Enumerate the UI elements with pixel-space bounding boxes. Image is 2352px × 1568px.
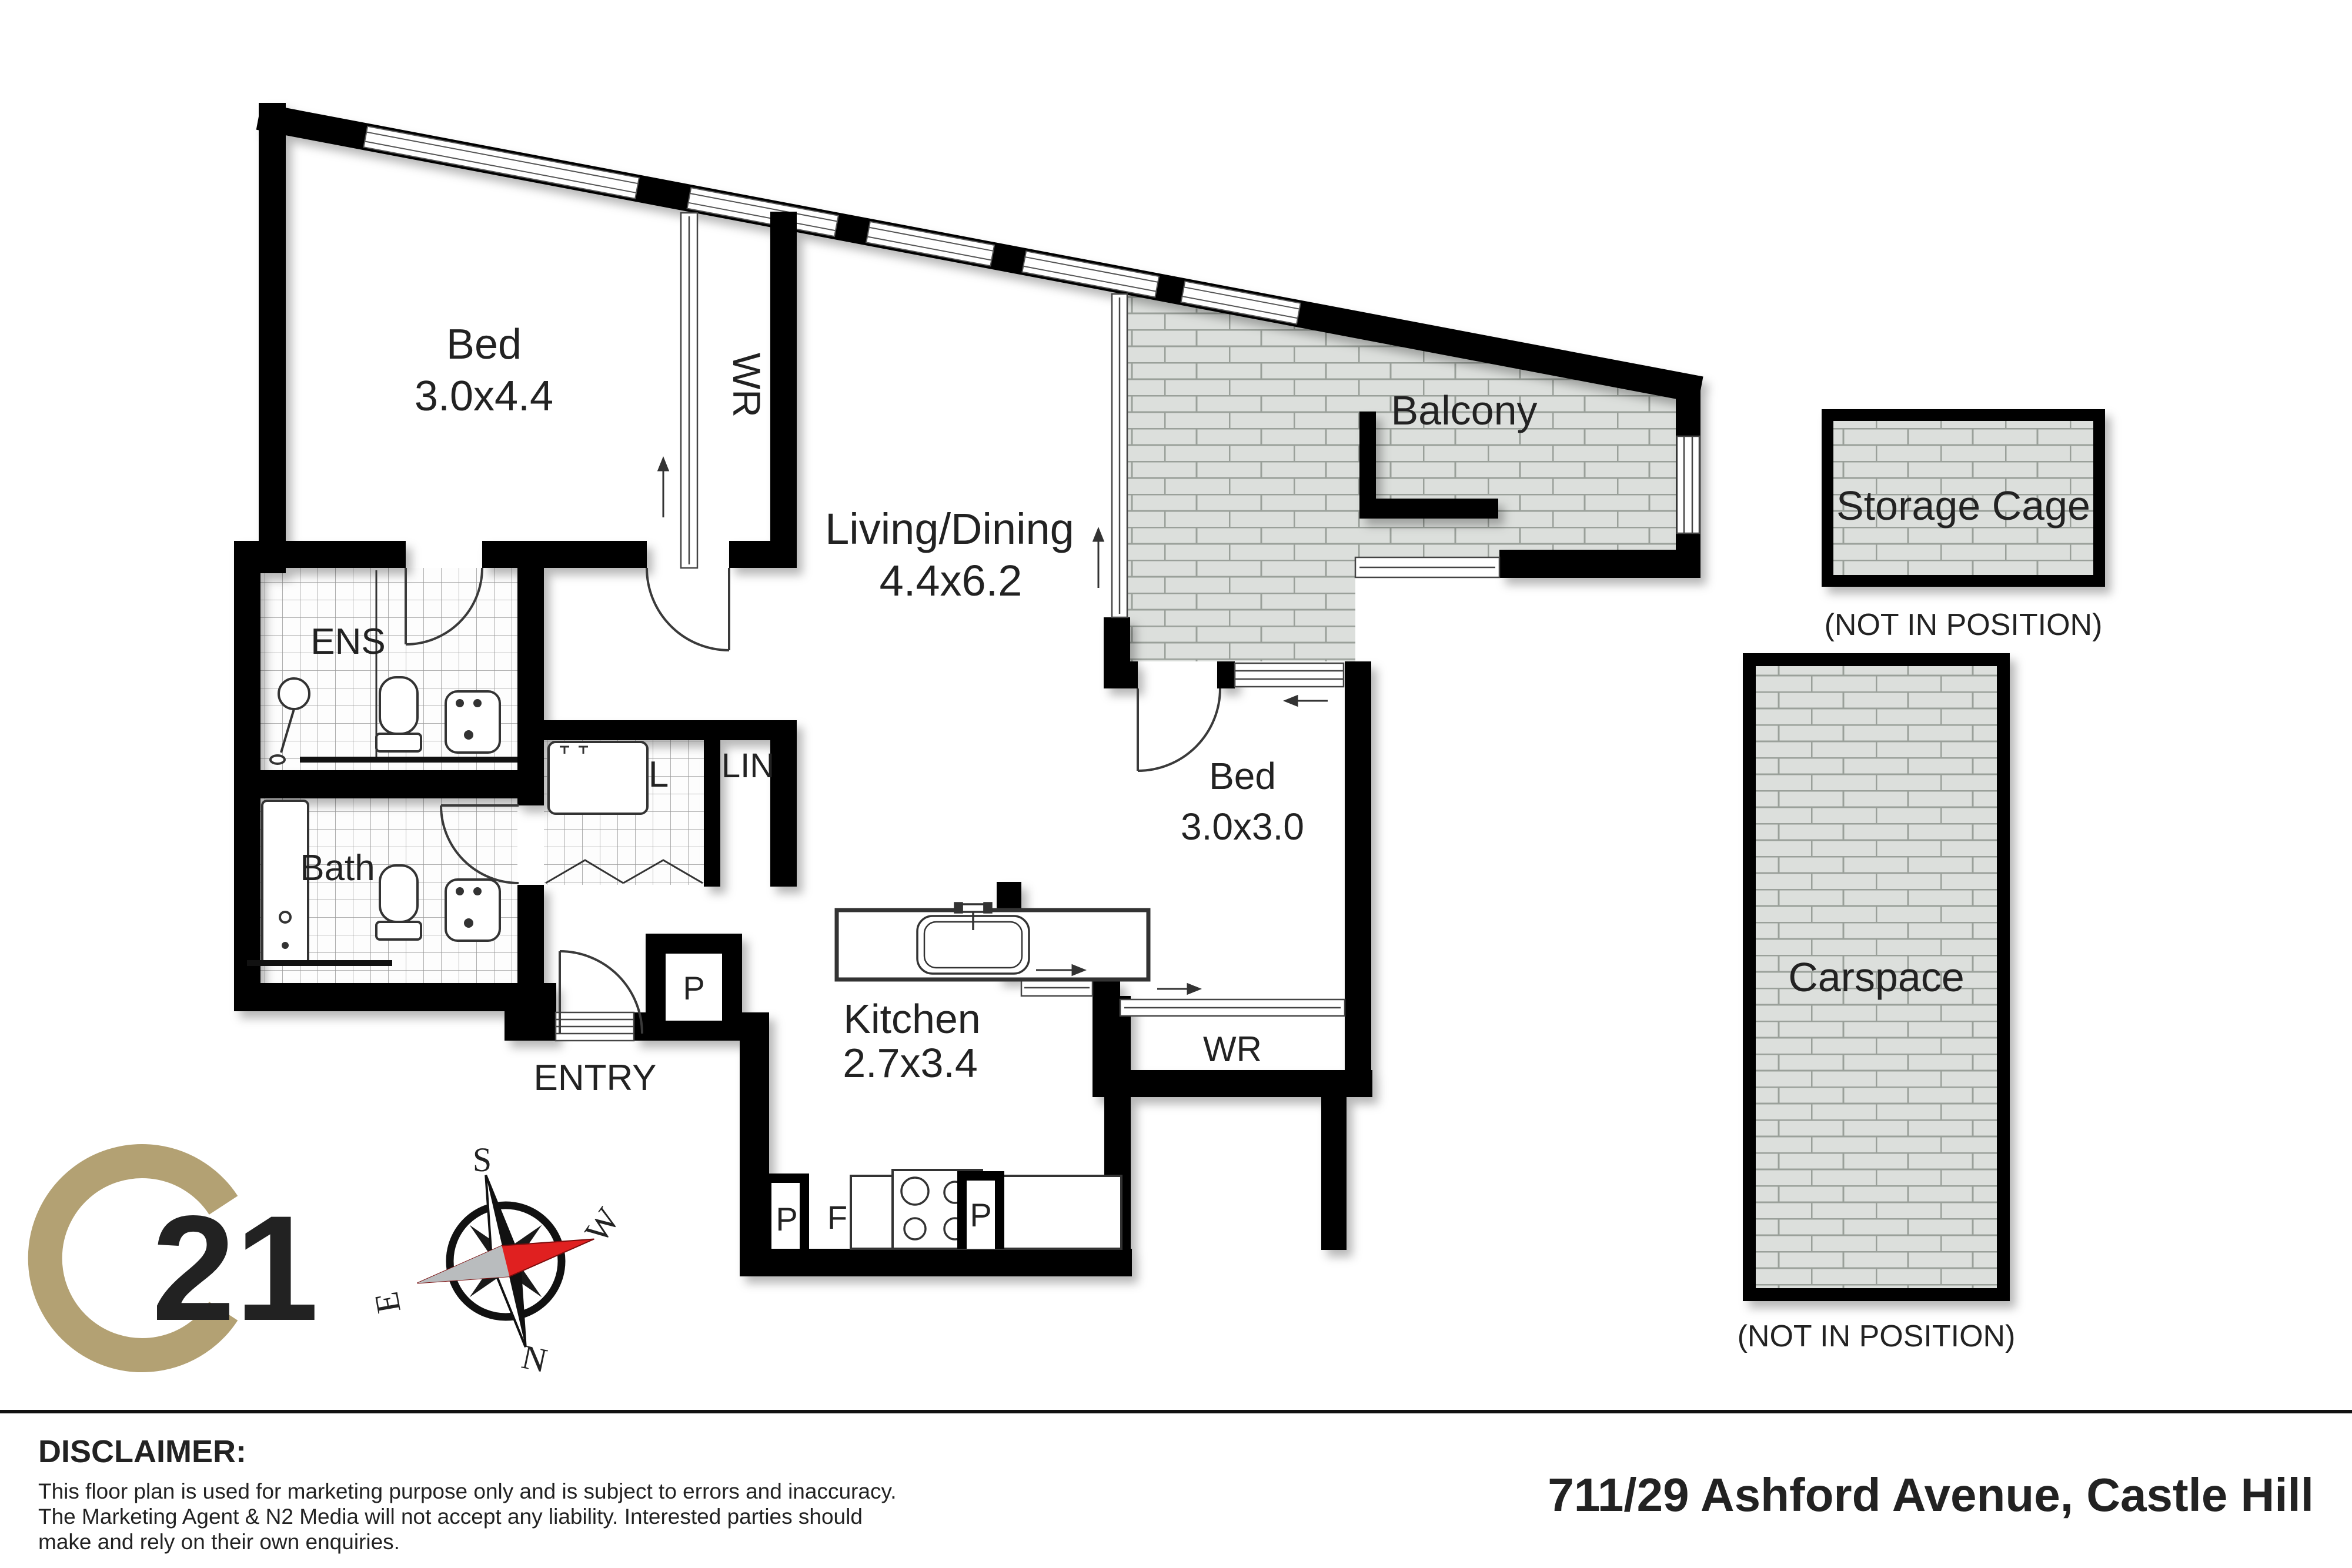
pantry-entry-label: P	[683, 969, 704, 1007]
living-balcony-slider	[1112, 294, 1127, 617]
balcony-bottom-slider	[1355, 557, 1499, 577]
disclaimer-title: DISCLAIMER:	[38, 1434, 246, 1469]
entry-threshold	[556, 1012, 634, 1041]
living-label: Living/Dining	[825, 504, 1074, 553]
balcony-privacy-wall	[1359, 412, 1376, 507]
laundry-label: L	[649, 754, 669, 795]
wall-wr2-bottom	[1093, 1070, 1372, 1097]
bath-vanity-counter	[247, 960, 392, 966]
kitchen-hall-opening	[1021, 979, 1093, 996]
wall-laundry-top	[544, 720, 797, 740]
footer-divider	[0, 1410, 2352, 1413]
living-dims: 4.4x6.2	[880, 556, 1023, 605]
linen-label: LIN	[721, 747, 774, 785]
storage-cage-label: Storage Cage	[1836, 483, 2090, 529]
bath-toilet-icon	[376, 865, 421, 940]
property-address: 711/29 Ashford Avenue, Castle Hill	[1548, 1469, 2314, 1521]
ens-vanity-counter	[300, 757, 517, 763]
floor-plan-canvas: Bed 3.0x4.4 WR Living/Dining 4.4x6.2 Bal…	[0, 0, 2352, 1568]
wall-kitchen-bottom	[740, 1249, 1132, 1276]
wr2-sliding-door	[1120, 999, 1345, 1016]
bath-label: Bath	[300, 848, 375, 888]
bed2-label: Bed	[1209, 755, 1276, 797]
floor-plan-page: Bed 3.0x4.4 WR Living/Dining 4.4x6.2 Bal…	[0, 0, 2352, 1568]
carspace-label: Carspace	[1788, 954, 1965, 1000]
ens-label: ENS	[310, 621, 385, 662]
balcony-right-window	[1677, 436, 1699, 533]
bed2-window	[1235, 663, 1344, 687]
carspace-note: (NOT IN POSITION)	[1738, 1319, 2016, 1353]
wall-ens-bath	[234, 770, 517, 798]
wall-bath-bottom	[234, 983, 529, 1011]
bed2-dims: 3.0x3.0	[1181, 805, 1304, 848]
ens-toilet-icon	[376, 677, 421, 751]
kitchen-label: Kitchen	[843, 996, 980, 1042]
kitchen-island	[837, 903, 1148, 979]
carspace: Carspace (NOT IN POSITION)	[1738, 653, 2016, 1353]
storage-cage-note: (NOT IN POSITION)	[1825, 608, 2103, 642]
disclaimer-line-2: The Marketing Agent & N2 Media will not …	[38, 1505, 863, 1529]
wall-balcony-bottom	[1499, 550, 1700, 578]
bath-basin-icon	[446, 880, 500, 941]
wr1-sliding-door	[681, 213, 697, 568]
wall-left-upper	[259, 103, 286, 573]
fridge-label: F	[827, 1199, 847, 1236]
balcony-label: Balcony	[1391, 387, 1537, 433]
bed1-label: Bed	[446, 321, 522, 368]
compass-south: S	[473, 1141, 492, 1179]
disclaimer-line-3: make and rely on their own enquiries.	[38, 1530, 400, 1554]
disclaimer-line-1: This floor plan is used for marketing pu…	[38, 1479, 896, 1503]
kitchen-dims: 2.7x3.4	[843, 1040, 978, 1086]
wall-bed2-right	[1345, 661, 1371, 1097]
ens-basin-icon	[446, 691, 500, 753]
entry-label: ENTRY	[533, 1058, 656, 1098]
pantry-left-label: P	[776, 1201, 797, 1238]
wall-wr1-right	[770, 212, 797, 568]
wr1-label: WR	[725, 353, 769, 417]
c21-number: 21	[152, 1185, 319, 1352]
washing-machine-icon	[549, 742, 647, 814]
bed1-dims: 3.0x4.4	[415, 373, 553, 420]
wr2-label: WR	[1203, 1029, 1262, 1069]
pantry-right-label: P	[970, 1196, 991, 1233]
